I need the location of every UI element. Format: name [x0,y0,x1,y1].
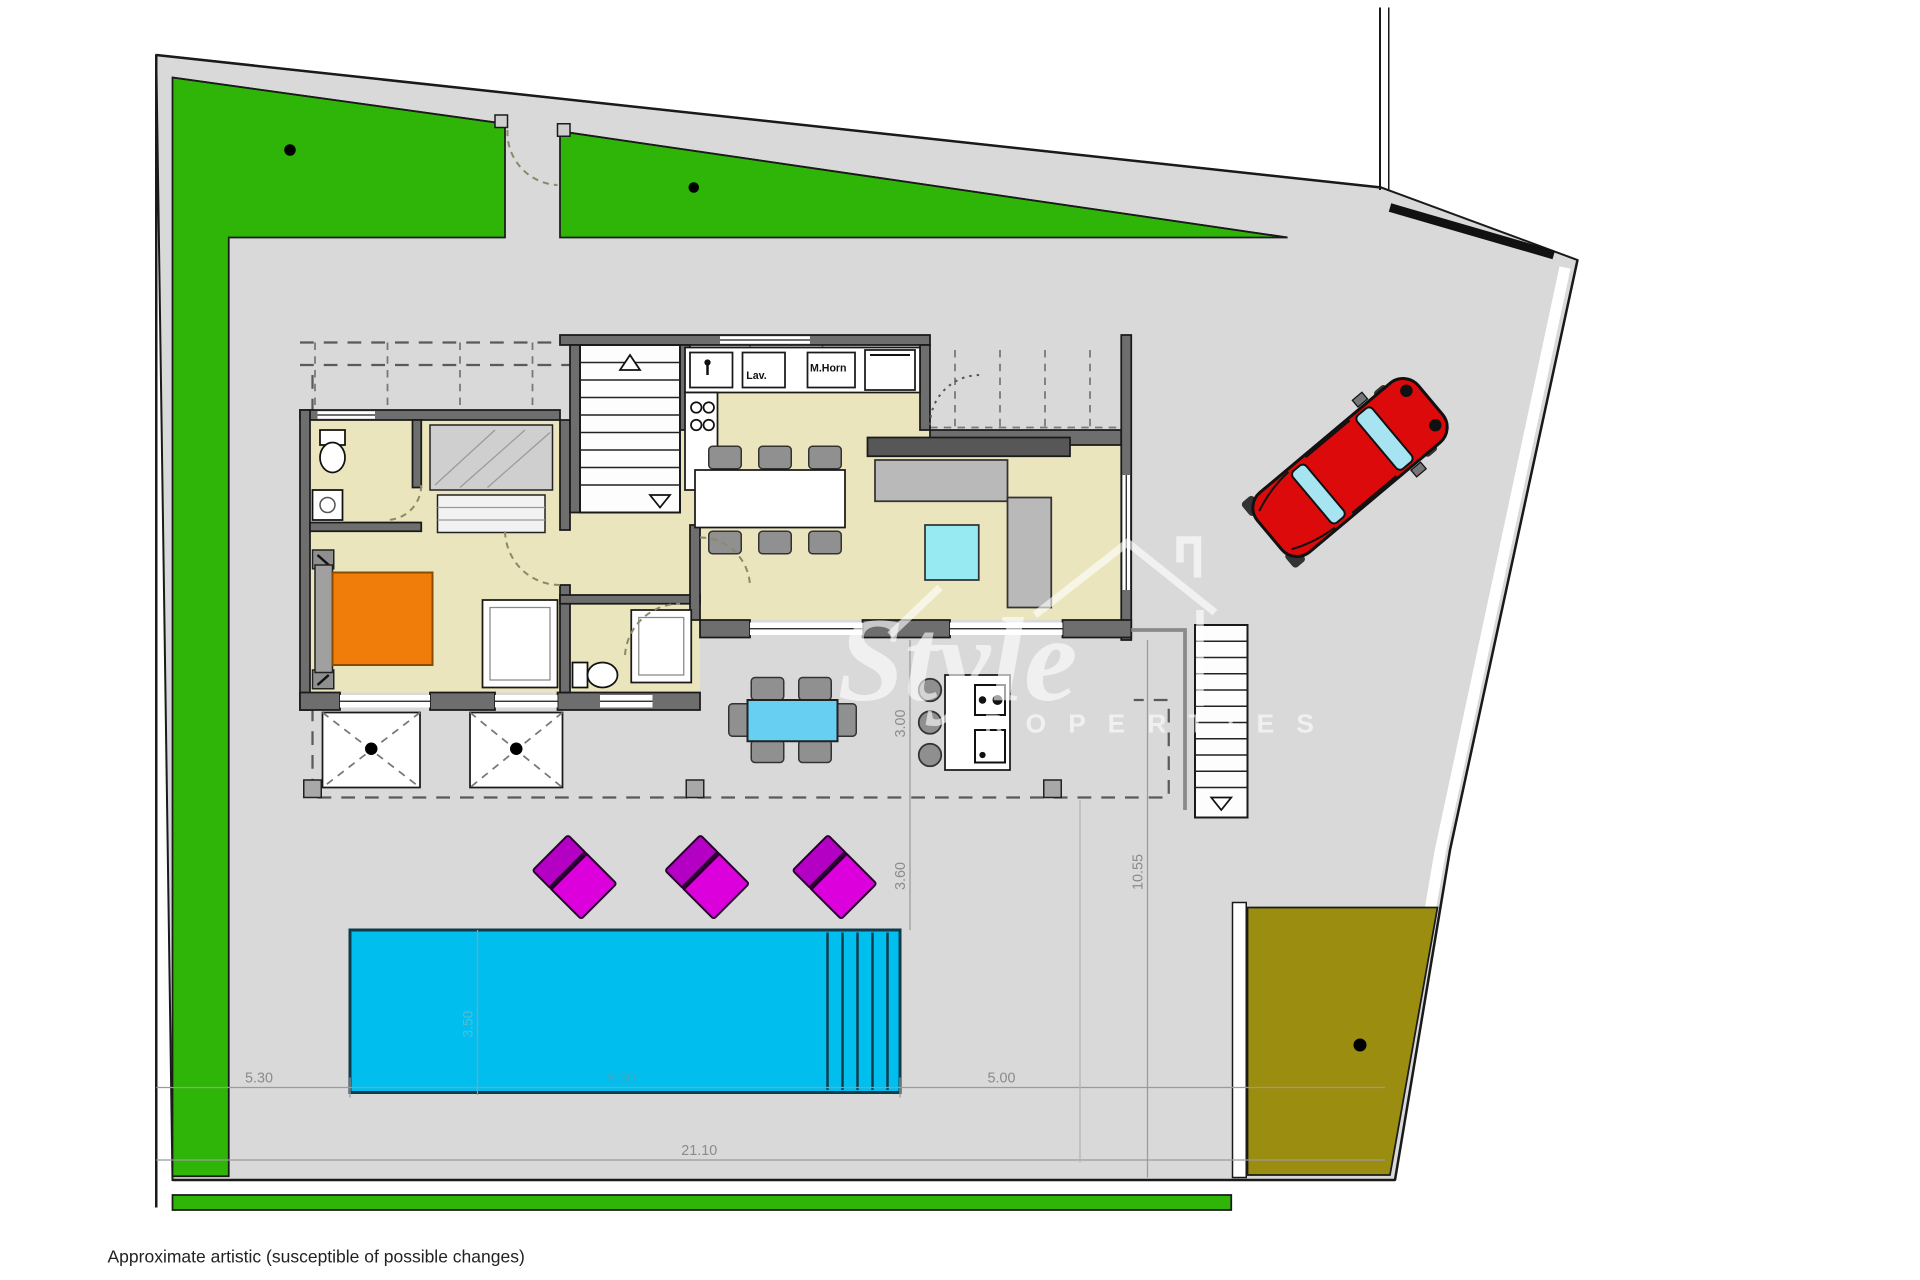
toilet-icon [320,443,345,473]
wall-entry-side [920,345,930,430]
bed [333,573,433,666]
olive-garden [1248,908,1438,1176]
dim-pool-offset: 3.60 [893,862,909,890]
dim-pool-width: 3.50 [461,1010,476,1037]
wall-bathroom2-north [560,595,700,604]
bar-stool [919,744,942,767]
dim-pool-length: 9.30 [608,1071,636,1087]
wall-bathroom1-east [413,420,422,488]
watermark-brand: Style [838,593,1078,726]
terrace-post [1044,780,1062,798]
coffee-table [925,525,979,580]
swimming-pool [350,930,900,1093]
kitchen-sink [690,353,733,388]
footer-note: Approximate artistic (susceptible of pos… [108,1247,525,1267]
dim-total-width: 21.10 [681,1143,717,1159]
site-plan: Lav. M.Horn [0,0,1920,1280]
closet-shelf [438,495,546,533]
wall-south-living-1 [700,620,750,638]
grass-strip-bottom [173,1195,1232,1210]
label-oven: M.Horn [810,362,847,374]
label-washer: Lav. [746,370,766,382]
terrace-post [686,780,704,798]
sink-icon [313,490,343,520]
staircase-interior [580,345,680,513]
dining-table-interior [695,446,845,554]
wall-corridor-1 [560,420,570,530]
wall-bathroom2-east [690,525,700,620]
dim-left-setback: 5.30 [245,1071,273,1087]
wall-stairs-west [570,345,580,513]
watermark-sub: P R O P E R T I E S [945,709,1321,739]
sofa-chaise [1008,498,1052,608]
sofa [875,460,1008,501]
dim-right-depth: 10.55 [1131,854,1147,890]
wall-bathroom1-south [310,523,421,532]
olive-border-strip [1233,903,1247,1178]
outdoor-dining-table [748,700,838,741]
bed-headboard [315,565,333,673]
dim-right-setback: 5.00 [988,1071,1016,1087]
closet [430,425,553,533]
wall-west [300,410,310,710]
planter-2 [466,699,569,799]
wall-south-bed-1 [300,693,340,711]
terrace-post [304,780,322,798]
wall-south-bed-2 [430,693,495,711]
toilet-icon [588,663,618,688]
wardrobe [483,600,558,688]
tv-media-wall [868,438,1071,457]
planter-1 [321,699,424,799]
toilet-tank [573,663,588,688]
